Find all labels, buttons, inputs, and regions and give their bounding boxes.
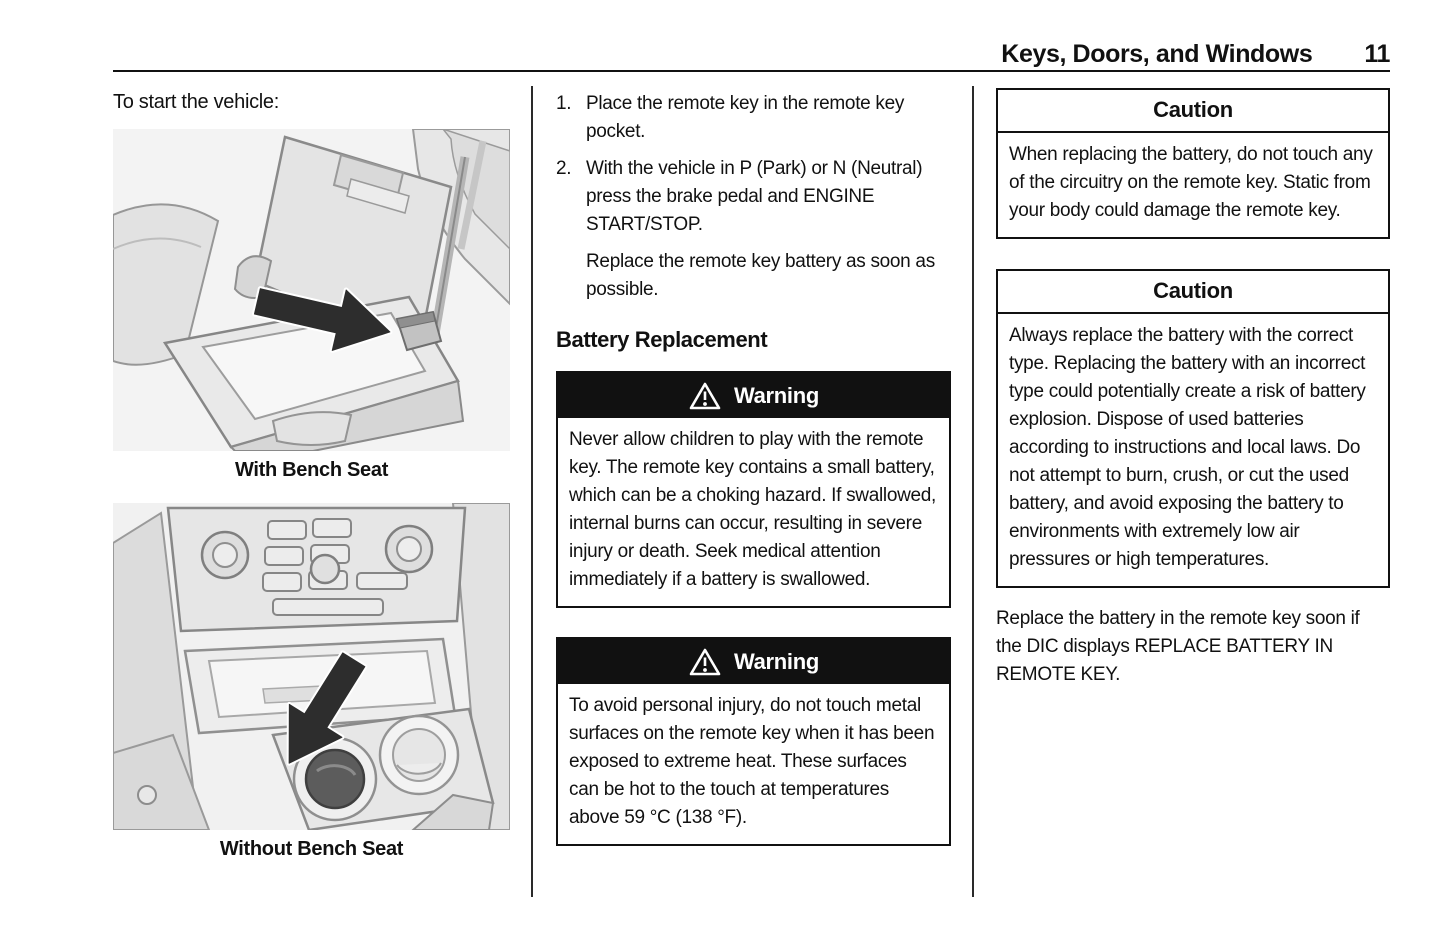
step-1-number: 1. [556, 90, 586, 146]
step-1: 1. Place the remote key in the remote ke… [556, 90, 951, 146]
console-without-bench-seat-illustration [113, 503, 510, 830]
step-1-text: Place the remote key in the remote key p… [586, 90, 951, 146]
warning-box-1-body: Never allow children to play with the re… [558, 418, 949, 606]
figure-without-bench-seat: Without Bench Seat [113, 503, 510, 863]
step-2-text: With the vehicle in P (Park) or N (Neutr… [586, 155, 951, 239]
warning-triangle-icon [688, 381, 722, 411]
middle-column: 1. Place the remote key in the remote ke… [556, 88, 951, 846]
warning-box-1-title: Warning [734, 382, 819, 410]
caution-box-2-title: Caution [998, 271, 1388, 314]
manual-page: Keys, Doors, and Windows 11 To start the… [0, 0, 1445, 951]
console-with-bench-seat-illustration [113, 129, 510, 451]
right-column: Caution When replacing the battery, do n… [996, 88, 1390, 689]
left-column: To start the vehicle: [113, 88, 510, 863]
caution-box-1: Caution When replacing the battery, do n… [996, 88, 1390, 239]
caution-box-1-body: When replacing the battery, do not touch… [998, 133, 1388, 237]
warning-triangle-icon [688, 647, 722, 677]
figure-with-bench-seat: With Bench Seat [113, 129, 510, 484]
warning-box-1-header: Warning [558, 373, 949, 418]
column-divider-right [972, 86, 974, 897]
column-divider-left [531, 86, 533, 897]
caution-box-2: Caution Always replace the battery with … [996, 269, 1390, 588]
chapter-title: Keys, Doors, and Windows [1001, 40, 1312, 69]
step-2-number: 2. [556, 155, 586, 239]
closing-paragraph: Replace the battery in the remote key so… [996, 605, 1390, 689]
figure-caption-without-bench-seat: Without Bench Seat [113, 835, 510, 863]
warning-box-2-header: Warning [558, 639, 949, 684]
intro-text: To start the vehicle: [113, 88, 510, 116]
page-header: Keys, Doors, and Windows 11 [113, 40, 1390, 69]
step-2: 2. With the vehicle in P (Park) or N (Ne… [556, 155, 951, 239]
warning-box-1: Warning Never allow children to play wit… [556, 371, 951, 608]
warning-box-2: Warning To avoid personal injury, do not… [556, 637, 951, 846]
page-number: 11 [1364, 40, 1390, 69]
header-rule [113, 70, 1390, 72]
caution-box-1-title: Caution [998, 90, 1388, 133]
section-heading-battery-replacement: Battery Replacement [556, 326, 951, 354]
warning-box-2-body: To avoid personal injury, do not touch m… [558, 684, 949, 844]
step-note: Replace the remote key battery as soon a… [586, 248, 951, 304]
warning-box-2-title: Warning [734, 648, 819, 676]
figure-caption-with-bench-seat: With Bench Seat [113, 456, 510, 484]
start-steps-list: 1. Place the remote key in the remote ke… [556, 90, 951, 304]
caution-box-2-body: Always replace the battery with the corr… [998, 314, 1388, 586]
